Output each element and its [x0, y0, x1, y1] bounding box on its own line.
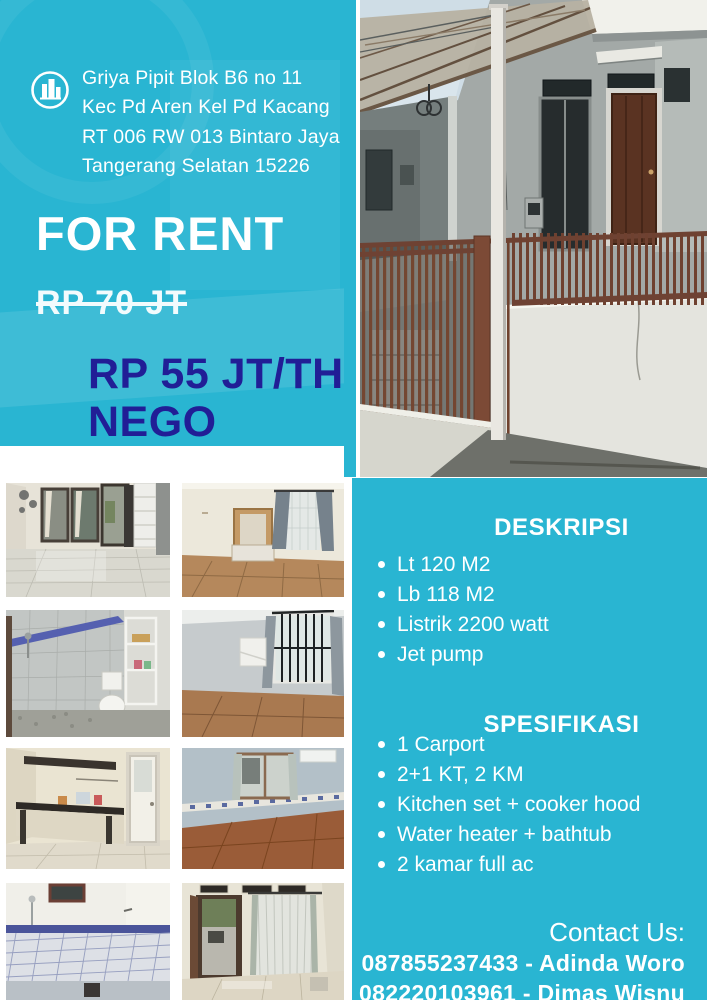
photo-living-room — [6, 483, 170, 597]
list-item: Lb 118 M2 — [376, 580, 703, 610]
contact-section: Contact Us: 087855237433 - Adinda Woro 0… — [359, 916, 685, 1000]
list-item: Listrik 2200 watt — [376, 610, 703, 640]
list-item-label: Listrik 2200 watt — [397, 610, 549, 640]
address-line: Kec Pd Aren Kel Pd Kacang — [82, 93, 340, 122]
photo-bedroom-2 — [182, 610, 344, 737]
bullet-dot-icon — [378, 561, 385, 568]
photo-bathroom-2 — [6, 883, 170, 1000]
info-panel: Griya Pipit Blok B6 no 11 Kec Pd Aren Ke… — [0, 0, 356, 446]
photo-family-room — [182, 748, 344, 869]
spesifikasi-list: 1 Carport 2+1 KT, 2 KM Kitchen set + coo… — [376, 730, 703, 880]
contact-line: 082220103961 - Dimas Wisnu — [359, 978, 685, 1000]
old-price: RP 70 JT — [36, 284, 187, 323]
address-line: RT 006 RW 013 Bintaro Jaya — [82, 123, 340, 152]
price-block: RP 55 JT/TH NEGO — [88, 350, 344, 446]
bullet-dot-icon — [378, 831, 385, 838]
bullet-dot-icon — [378, 741, 385, 748]
address-row: Griya Pipit Blok B6 no 11 Kec Pd Aren Ke… — [30, 64, 340, 182]
house-exterior-photo — [360, 0, 707, 477]
list-item-label: Water heater + bathtub — [397, 820, 612, 850]
list-item: Jet pump — [376, 640, 703, 670]
photo-entryway — [182, 883, 344, 1000]
bullet-dot-icon — [378, 591, 385, 598]
deskripsi-heading: DESKRIPSI — [422, 514, 701, 542]
list-item-label: 2 kamar full ac — [397, 850, 534, 880]
list-item: Water heater + bathtub — [376, 820, 703, 850]
address-line: Tangerang Selatan 15226 — [82, 152, 340, 181]
deskripsi-list: Lt 120 M2 Lb 118 M2 Listrik 2200 watt Je… — [376, 550, 703, 670]
address: Griya Pipit Blok B6 no 11 Kec Pd Aren Ke… — [82, 64, 340, 182]
rental-flyer: Griya Pipit Blok B6 no 11 Kec Pd Aren Ke… — [0, 0, 707, 1000]
new-price: RP 55 JT/TH — [88, 350, 344, 398]
list-item: 2+1 KT, 2 KM — [376, 760, 703, 790]
list-item: 1 Carport — [376, 730, 703, 760]
building-logo-icon — [30, 70, 70, 110]
bullet-dot-icon — [378, 621, 385, 628]
list-item-label: Jet pump — [397, 640, 483, 670]
list-item: Kitchen set + cooker hood — [376, 790, 703, 820]
nego-label: NEGO — [88, 398, 344, 446]
list-item-label: 2+1 KT, 2 KM — [397, 760, 524, 790]
list-item-label: Kitchen set + cooker hood — [397, 790, 640, 820]
teal-accent-band — [344, 0, 356, 477]
contact-line: 087855237433 - Adinda Woro — [359, 948, 685, 978]
for-rent-headline: FOR RENT — [36, 206, 284, 261]
list-item: 2 kamar full ac — [376, 850, 703, 880]
contact-label: Contact Us: — [359, 916, 685, 948]
photo-kitchen — [6, 748, 170, 869]
address-line: Griya Pipit Blok B6 no 11 — [82, 64, 340, 93]
bullet-dot-icon — [378, 651, 385, 658]
list-item-label: Lt 120 M2 — [397, 550, 490, 580]
bullet-dot-icon — [378, 861, 385, 868]
details-panel: DESKRIPSI Lt 120 M2 Lb 118 M2 Listrik 22… — [352, 478, 707, 1000]
photo-bathroom-1 — [6, 610, 170, 737]
photo-bedroom-1 — [182, 483, 344, 597]
bullet-dot-icon — [378, 801, 385, 808]
list-item-label: Lb 118 M2 — [397, 580, 495, 610]
bullet-dot-icon — [378, 771, 385, 778]
list-item: Lt 120 M2 — [376, 550, 703, 580]
list-item-label: 1 Carport — [397, 730, 485, 760]
